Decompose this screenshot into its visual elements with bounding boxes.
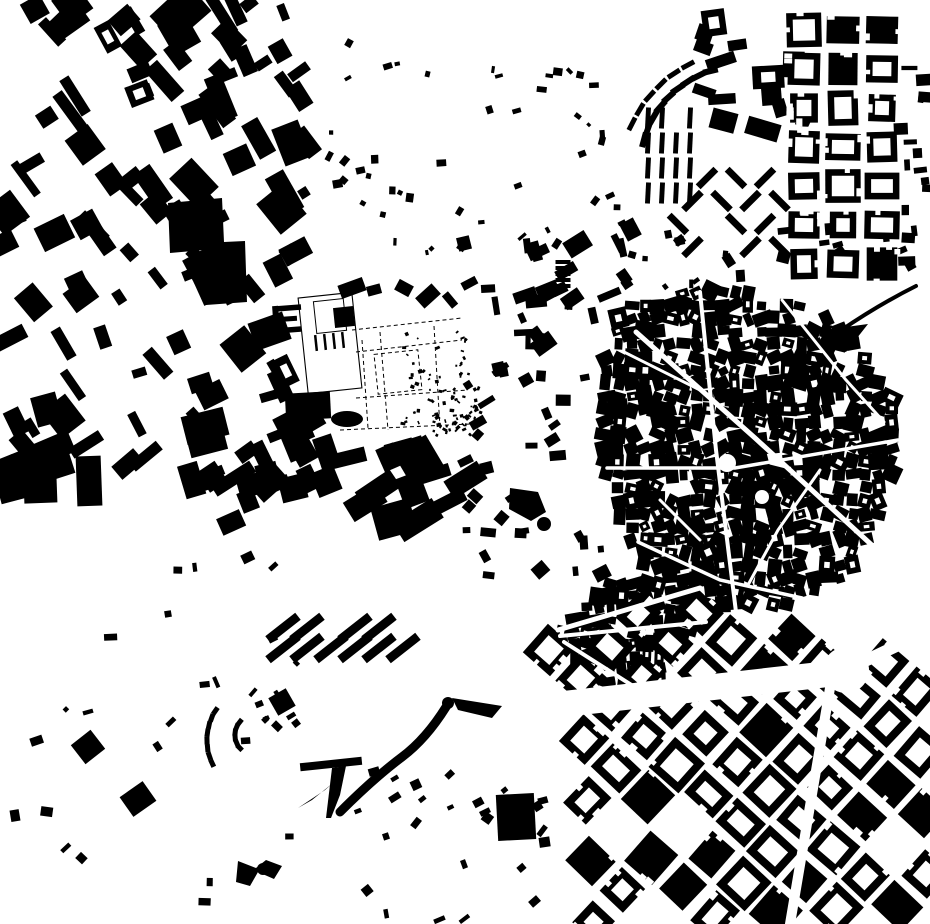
northeast-grid-notch	[786, 111, 793, 119]
northeast-grid-courtyard	[871, 179, 893, 193]
north-sparse-houses-building	[599, 130, 605, 138]
northwest-industrial-building	[120, 243, 139, 263]
old-town-building	[777, 323, 796, 337]
northwest-industrial-building	[35, 106, 59, 129]
old-town-building	[754, 571, 766, 586]
campus-speckle-b-building	[448, 428, 451, 432]
center-cluster-building	[481, 284, 496, 293]
ne-crescent-outer-house	[681, 60, 696, 71]
north-sparse-houses-building	[428, 246, 434, 252]
southwest-sparse-building	[40, 806, 53, 817]
north-sparse-houses-building	[605, 192, 615, 200]
ne-diamond-slabs-slab	[739, 190, 762, 213]
northeast-grid-notch	[875, 207, 880, 215]
oldtown-nw-fringe-building	[628, 251, 637, 260]
north-sparse-houses-building	[576, 71, 585, 79]
northeast-grid-notch	[796, 10, 803, 17]
northeast-grid-courtyard	[794, 59, 814, 79]
northeast-grid-notch	[817, 190, 823, 199]
old-town-building	[793, 301, 806, 312]
old-town-courtyard	[862, 356, 867, 361]
old-town-building	[625, 301, 640, 311]
northwest-industrial-building	[34, 214, 76, 252]
campus-speckle-a-building	[406, 353, 409, 356]
campus-dash-1	[352, 318, 462, 330]
campus-speckle-a-building	[435, 380, 439, 384]
center-cluster-building	[517, 312, 527, 324]
center-loose-building	[598, 546, 605, 553]
old-town-building	[702, 507, 717, 521]
northeast-grid-notch	[840, 50, 847, 55]
ne-diamond-slabs-slab	[710, 190, 733, 213]
midleft-industrial-building	[51, 327, 77, 361]
campus-speckle-b-building	[462, 427, 467, 431]
old-town-building	[742, 378, 755, 389]
southwest-sparse-building	[241, 737, 251, 744]
old-town-courtyard	[746, 301, 750, 307]
center-cluster-building	[460, 276, 478, 291]
north-sparse-houses-building	[536, 86, 547, 93]
ne-crescent-columns-slab	[673, 157, 679, 178]
northeast-grid-notch	[886, 245, 892, 250]
southwest-sparse-building	[29, 735, 44, 747]
northeast-grid-notch	[798, 90, 805, 97]
northeast-grid-courtyard	[797, 100, 812, 116]
northwest-industrial-building	[297, 186, 311, 200]
north-sparse-houses-building	[389, 186, 396, 194]
northeast-grid-notch	[874, 243, 880, 252]
north-sparse-houses-building	[586, 122, 591, 127]
old-town-building	[636, 557, 651, 572]
campus-speckle-a-building	[429, 374, 432, 377]
center-loose-building	[549, 450, 566, 461]
northeast-grid-courtyard	[795, 179, 814, 193]
north-sparse-houses-building	[485, 105, 494, 115]
old-town-building	[688, 411, 705, 432]
old-town-building	[809, 585, 820, 596]
center-loose-building	[463, 380, 474, 391]
old-town-building	[808, 415, 821, 430]
ne-top-blocks-building	[771, 98, 789, 118]
ne-diamond-slabs-slab	[681, 190, 704, 213]
old-town-courtyard	[733, 381, 737, 388]
south-center-houses-building	[536, 824, 548, 837]
southwest-sparse-building	[60, 843, 71, 854]
northeast-grid-notch	[856, 188, 865, 196]
campus-speckle-a-building	[428, 378, 431, 381]
warehouse-2	[76, 456, 103, 507]
ne-crescent-outer-house	[627, 117, 638, 132]
south-center-houses-building	[388, 791, 402, 803]
campus-speckle-a-building	[462, 356, 466, 360]
old-town-building	[778, 597, 794, 612]
center-loose-building	[469, 415, 488, 431]
sw-square-3	[268, 688, 295, 715]
campus-speckle-a-building	[471, 406, 473, 408]
old-town-courtyard	[654, 459, 660, 465]
campus-speckle-b-building	[457, 400, 461, 404]
oldtown-nw-fringe-building	[674, 236, 685, 246]
south-center-houses-building	[444, 769, 455, 780]
campus-speckle-b-building	[474, 398, 478, 402]
northeast-grid-notch	[800, 208, 808, 214]
campus-speckle-b-building	[442, 401, 446, 405]
campus-speckle-a-building	[411, 373, 414, 377]
old-town-building	[691, 493, 705, 506]
old-town-building	[613, 505, 626, 525]
old-town-building	[835, 390, 844, 401]
north-sparse-houses-building	[614, 204, 621, 210]
southwest-sparse-building	[152, 741, 162, 752]
campus-outline-dashed	[374, 350, 422, 394]
north-sparse-houses-building	[405, 193, 414, 203]
center-loose-building	[477, 395, 495, 409]
campus-speckle-a-building	[455, 330, 459, 333]
campus-speckle-b-building	[472, 424, 474, 426]
midleft-industrial-building	[111, 448, 144, 480]
old-town-building	[832, 494, 844, 506]
southwest-sparse-building	[10, 809, 21, 822]
old-town-courtyard	[849, 435, 854, 439]
midleft-industrial-building	[127, 411, 147, 438]
ne-crescent-columns-slab	[659, 157, 665, 178]
northeast-grid-notch	[854, 90, 863, 99]
northeast-grid-notch	[817, 212, 823, 219]
old-town-building	[627, 339, 638, 349]
southwest-sparse-building	[75, 852, 88, 865]
northwest-industrial-building	[0, 190, 30, 236]
south-center-houses-building	[390, 775, 399, 783]
north-sparse-houses-building	[514, 182, 523, 190]
north-sparse-houses-building	[551, 238, 562, 250]
old-town-courtyard	[864, 525, 870, 529]
ne-east-edge-building	[918, 91, 930, 103]
campus-south-slab	[285, 391, 331, 420]
southwest-sparse-building	[207, 878, 213, 886]
ne-crescent-columns-slab	[687, 107, 693, 128]
old-town-courtyard	[615, 459, 620, 465]
old-town-courtyard	[876, 484, 881, 490]
old-town-courtyard	[683, 409, 687, 413]
northeast-grid-notch	[863, 136, 870, 143]
north-sparse-houses-building	[566, 67, 573, 74]
southwest-sparse-building	[271, 720, 283, 732]
center-cluster-building	[491, 296, 500, 315]
north-sparse-houses-building	[383, 62, 394, 71]
river-wall	[840, 286, 916, 331]
center-loose-building	[544, 432, 561, 448]
old-town-building	[769, 365, 780, 375]
northwest-industrial-building	[276, 3, 290, 22]
center-loose-building	[580, 374, 590, 382]
center-loose-building	[518, 372, 534, 388]
southwest-sparse-building	[268, 561, 278, 571]
campus-north-3	[394, 279, 414, 297]
northwest-industrial-building	[148, 267, 168, 290]
old-town-courtyard	[644, 304, 648, 308]
wedge-district-courtyard	[645, 652, 648, 657]
old-town-building	[651, 324, 666, 339]
ne-diamond-slabs-slab	[739, 236, 762, 259]
campus-north-5	[442, 291, 458, 308]
northeast-grid-notch	[856, 26, 863, 32]
campus-speckle-b-building	[462, 395, 466, 398]
southwest-sparse-building	[240, 551, 255, 565]
old-town-building	[783, 545, 793, 559]
north-sparse-houses-building	[512, 107, 522, 114]
ne-diamond-slabs-slab	[696, 167, 719, 190]
old-town-building	[665, 533, 675, 546]
midleft-industrial-building	[131, 367, 147, 379]
northeast-grid-notch	[864, 104, 872, 113]
campus-north-4	[415, 283, 441, 308]
northeast-grid-block	[826, 16, 859, 44]
campus-speckle-b-building	[432, 420, 436, 423]
ne-crescent-columns-slab	[645, 157, 651, 178]
south-center-houses-building	[539, 836, 551, 848]
old-town-building	[614, 338, 623, 350]
campus-speckle-a-building	[467, 373, 470, 376]
ne-top-blocks-building	[709, 108, 739, 134]
south-center-houses-building	[460, 859, 468, 869]
center-loose-building	[548, 419, 561, 431]
southwest-sparse-building	[63, 706, 70, 713]
north-sparse-houses-building	[355, 166, 365, 174]
northeast-grid-notch	[874, 90, 879, 99]
northeast-grid-block	[828, 53, 857, 86]
northeast-grid-notch	[784, 59, 792, 64]
campus-speckle-a-building	[413, 411, 416, 414]
old-town-courtyard	[644, 536, 648, 540]
oldtown-nw-fringe-building	[689, 280, 693, 289]
center-loose-building	[463, 527, 471, 533]
northeast-grid-notch	[857, 135, 864, 143]
ne-crescent-outer-house	[654, 77, 667, 90]
old-town-courtyard	[680, 420, 685, 424]
campus-dash-7	[362, 340, 368, 428]
south-center-houses-building	[410, 817, 422, 830]
old-town-building	[718, 366, 730, 377]
old-town-courtyard	[642, 367, 648, 374]
northeast-grid-courtyard	[832, 140, 855, 154]
campus-speckle-b-building	[463, 416, 465, 418]
campus-speckle-a-building	[429, 389, 431, 391]
old-town-courtyard	[705, 484, 713, 490]
old-town-courtyard	[784, 407, 791, 412]
center-loose-building	[483, 571, 495, 579]
northeast-grid-courtyard	[795, 137, 813, 157]
north-sparse-houses-building	[574, 112, 582, 120]
campus-speckle-b-building	[453, 414, 457, 416]
old-town-courtyard	[889, 419, 894, 425]
ne-crescent-outer-house	[634, 102, 645, 117]
south-center-houses-building	[410, 778, 423, 791]
map-canvas	[0, 0, 930, 924]
old-town-courtyard	[773, 395, 777, 400]
small-square	[755, 490, 769, 504]
campus-north-2	[366, 283, 382, 296]
campus-speckle-a-building	[404, 332, 409, 337]
campus-speckle-b-building	[444, 419, 446, 423]
ne-east-edge-building	[911, 225, 918, 236]
old-town-building	[703, 490, 716, 508]
midleft-industrial-building	[93, 324, 112, 349]
northeast-grid-notch	[815, 260, 821, 267]
northeast-grid-notch	[823, 194, 827, 198]
northeast-grid-notch	[874, 279, 880, 283]
northeast-grid-courtyard	[875, 101, 889, 116]
ne-top-blocks-building	[708, 93, 736, 105]
south-center-houses-building	[383, 909, 389, 919]
campus-speckle-a-building	[461, 350, 465, 353]
northwest-industrial-building	[154, 123, 183, 154]
ne-top-blocks-building	[744, 116, 782, 143]
industrial-belt-b-building	[312, 433, 341, 470]
south-center-houses-building	[516, 863, 526, 873]
ne-diamond-slabs-slab	[725, 213, 748, 236]
old-town-building	[676, 337, 691, 349]
northeast-grid-courtyard	[873, 62, 892, 77]
northeast-grid-notch	[783, 27, 790, 32]
center-loose-building	[556, 395, 571, 406]
old-town-building	[768, 310, 780, 324]
north-sparse-houses-building	[578, 150, 587, 159]
north-sparse-houses-building	[478, 220, 485, 225]
north-sparse-houses-building	[553, 67, 563, 76]
campus-speckle-a-building	[417, 337, 419, 339]
old-town-building	[662, 338, 676, 352]
campus-speckle-a-building	[409, 377, 413, 379]
northwest-industrial-building	[287, 61, 311, 82]
campus-speckle-b-building	[435, 433, 439, 437]
campus-speckle-a-building	[417, 421, 420, 425]
south-center-houses-building	[433, 915, 446, 924]
center-loose-building	[480, 527, 496, 537]
campus-speckle-a-building	[405, 417, 407, 420]
old-town-building	[612, 482, 623, 493]
ne-east-edge-building	[914, 167, 928, 174]
old-town-courtyard	[629, 367, 636, 372]
wedge-district-building	[581, 602, 592, 611]
ne-crescent-columns-slab	[645, 182, 651, 203]
ladder-bars-slab	[556, 284, 571, 288]
station-pennant	[452, 698, 502, 718]
north-sparse-houses-building	[366, 173, 372, 180]
southwest-sparse-building	[164, 610, 172, 618]
north-sparse-houses-building	[589, 82, 599, 88]
northeast-grid-notch	[894, 249, 900, 254]
campus-bar-2	[323, 334, 327, 350]
wedge-district-courtyard	[632, 642, 635, 645]
midleft-industrial-building	[0, 324, 28, 356]
old-town-building	[860, 481, 874, 494]
campus-speckle-b-building	[469, 411, 473, 415]
north-sparse-houses-building	[380, 211, 387, 218]
southeast-grid-block	[659, 863, 707, 911]
campus-speckle-a-building	[417, 409, 421, 413]
northeast-grid-courtyard	[834, 97, 852, 120]
campus-speckle-a-building	[412, 362, 415, 365]
ne-east-edge-building	[901, 66, 917, 70]
old-town-building	[651, 518, 667, 533]
southwest-sparse-building	[104, 634, 117, 641]
northeast-grid-notch	[785, 138, 793, 147]
campus-bar-4	[341, 332, 345, 348]
north-sparse-houses-building	[359, 200, 366, 207]
north-sparse-houses-building	[455, 206, 464, 216]
south-center-houses-building	[459, 914, 471, 924]
center-loose-building	[531, 560, 551, 580]
sw-arc-outer-house	[204, 737, 209, 745]
viaduct-west-arm	[300, 757, 362, 771]
old-town-courtyard	[719, 562, 725, 568]
northeast-grid-courtyard	[797, 255, 811, 273]
sw-hill-cluster-building	[286, 712, 296, 721]
campus-speckle-a-building	[438, 390, 442, 394]
old-town-building	[729, 494, 742, 504]
northeast-grid-notch	[895, 29, 900, 34]
ne-diamond-slabs-slab	[725, 167, 748, 190]
southwest-sparse-building	[173, 567, 182, 574]
ne-crescent-columns-slab	[659, 182, 665, 203]
ne-gap-scatter-building	[736, 270, 746, 283]
northeast-grid-notch	[784, 53, 792, 58]
castle-keep	[537, 517, 551, 531]
northeast-grid-courtyard	[795, 218, 814, 232]
campus-dash-2	[356, 340, 462, 352]
campus-speckle-a-building	[473, 387, 478, 392]
campus-dash-3	[380, 332, 388, 430]
northeast-grid-block	[866, 16, 899, 44]
sw-arc-outer-house	[206, 751, 213, 760]
north-sparse-houses-building	[394, 61, 400, 66]
northwest-industrial-building	[14, 282, 53, 322]
center-loose-building	[525, 443, 537, 449]
oldtown-nw-fringe-building	[642, 256, 648, 262]
north-sparse-houses-building	[495, 73, 504, 79]
southwest-sparse-building	[199, 681, 210, 688]
sw-square-1	[71, 730, 105, 764]
midleft-industrial-building	[68, 430, 104, 459]
old-town-courtyard	[631, 395, 635, 399]
old-town-building	[809, 507, 819, 520]
wedge-district-courtyard	[619, 592, 624, 599]
campus-speckle-a-building	[414, 382, 419, 387]
sw-square-2	[120, 781, 157, 817]
northeast-grid-notch	[845, 165, 850, 173]
sw-arc-outer-house	[206, 721, 213, 730]
campus-bar-1	[314, 335, 318, 351]
ne-crescent-columns-slab	[687, 157, 693, 178]
northeast-grid-courtyard	[833, 256, 852, 272]
ne-crescent-columns-slab	[687, 132, 693, 153]
old-town-building	[846, 493, 858, 506]
northeast-grid-notch	[843, 209, 848, 215]
old-town-building	[868, 374, 886, 391]
northeast-grid-notch	[801, 127, 809, 136]
northwest-industrial-building	[223, 143, 256, 176]
campus-speckle-a-building	[410, 384, 415, 389]
south-center-houses-building	[537, 796, 548, 805]
north-sparse-houses-building	[425, 71, 431, 78]
ne-crescent-outer-house	[643, 89, 656, 103]
old-town-courtyard	[824, 562, 830, 568]
southeast-grid-block	[565, 836, 616, 887]
north-sparse-houses-building	[590, 195, 600, 206]
ne-crescent-outer-house	[667, 68, 682, 80]
north-sparse-houses-building	[339, 155, 350, 167]
northeast-grid-courtyard	[793, 19, 816, 41]
